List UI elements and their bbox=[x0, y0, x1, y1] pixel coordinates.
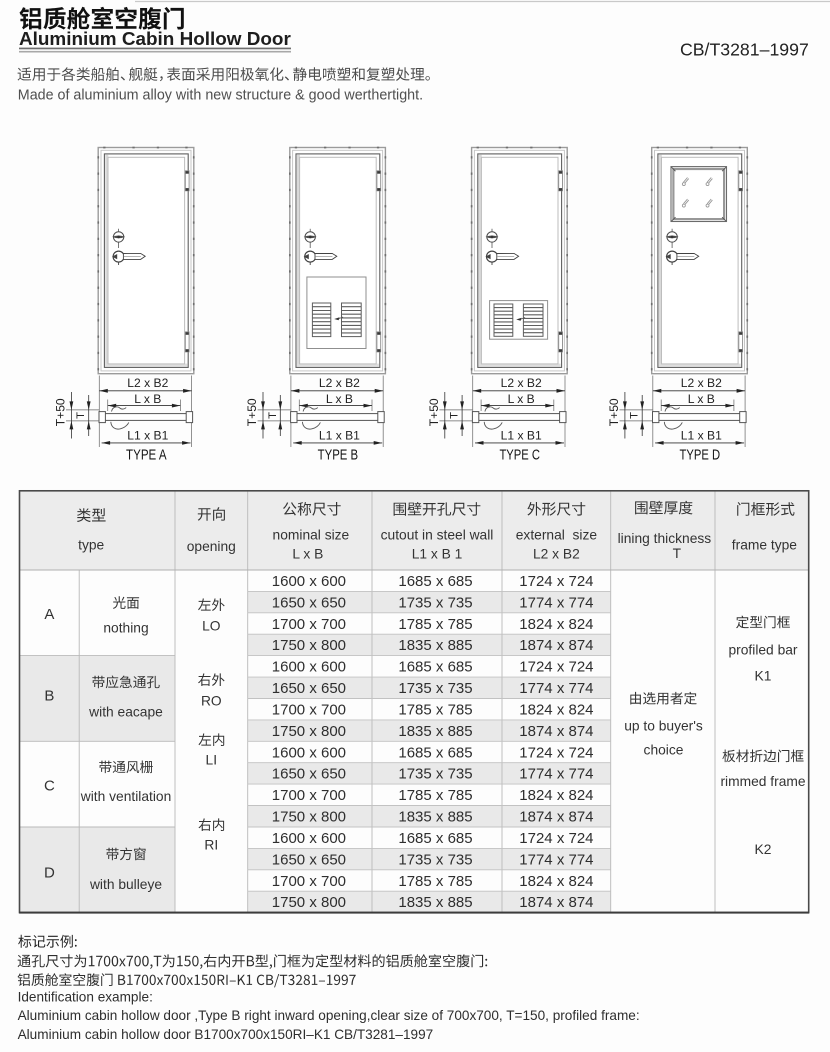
svg-text:1685 x 685: 1685 x 685 bbox=[398, 830, 472, 847]
svg-text:1685 x 685: 1685 x 685 bbox=[398, 744, 472, 761]
svg-text:L x B: L x B bbox=[292, 547, 323, 562]
svg-text:with ventilation: with ventilation bbox=[80, 789, 172, 804]
svg-text:T: T bbox=[267, 412, 279, 419]
svg-text:1735 x 735: 1735 x 735 bbox=[398, 766, 472, 783]
svg-text:1700 x 700: 1700 x 700 bbox=[272, 787, 346, 804]
svg-text:Aluminium cabin hollow door ,T: Aluminium cabin hollow door ,Type B righ… bbox=[18, 1008, 640, 1023]
svg-text:nominal size: nominal size bbox=[273, 528, 350, 543]
svg-text:T: T bbox=[75, 412, 87, 419]
svg-text:1600 x 600: 1600 x 600 bbox=[272, 573, 346, 590]
svg-text:1785 x 785: 1785 x 785 bbox=[398, 616, 472, 633]
svg-text:1685 x 685: 1685 x 685 bbox=[398, 659, 472, 676]
svg-text:D: D bbox=[44, 864, 55, 881]
svg-text:nothing: nothing bbox=[103, 621, 148, 636]
svg-text:1700 x 700: 1700 x 700 bbox=[272, 702, 346, 719]
svg-text:1835 x 885: 1835 x 885 bbox=[398, 894, 472, 911]
svg-text:1685 x 685: 1685 x 685 bbox=[398, 573, 472, 590]
svg-text:1700 x 700: 1700 x 700 bbox=[272, 616, 346, 633]
svg-text:T: T bbox=[673, 546, 682, 561]
svg-text:K2: K2 bbox=[755, 842, 772, 857]
svg-text:T+50: T+50 bbox=[245, 398, 259, 426]
svg-text:1874 x 874: 1874 x 874 bbox=[519, 894, 593, 911]
svg-text:rimmed frame: rimmed frame bbox=[720, 774, 805, 789]
svg-text:L2 x B2: L2 x B2 bbox=[127, 376, 168, 390]
svg-text:1724 x 724: 1724 x 724 bbox=[519, 573, 593, 590]
svg-text:Made of aluminium alloy with n: Made of aluminium alloy with new structu… bbox=[18, 87, 423, 103]
svg-text:1824 x 824: 1824 x 824 bbox=[519, 873, 593, 890]
svg-text:up to buyer's: up to buyer's bbox=[624, 719, 703, 734]
svg-text:with eacape: with eacape bbox=[88, 705, 163, 720]
svg-text:Aluminium cabin hollow door B1: Aluminium cabin hollow door B1700x700x15… bbox=[18, 1027, 434, 1042]
svg-text:C: C bbox=[44, 777, 55, 794]
svg-text:1824 x 824: 1824 x 824 bbox=[519, 702, 593, 719]
svg-text:1724 x 724: 1724 x 724 bbox=[519, 744, 593, 761]
svg-text:L1 x B1: L1 x B1 bbox=[681, 428, 722, 442]
svg-text:L1 x B1: L1 x B1 bbox=[127, 428, 168, 442]
svg-text:1785 x 785: 1785 x 785 bbox=[398, 702, 472, 719]
svg-text:1735 x 735: 1735 x 735 bbox=[398, 680, 472, 697]
svg-text:B: B bbox=[44, 687, 54, 704]
svg-text:1735 x 735: 1735 x 735 bbox=[398, 851, 472, 868]
svg-text:1650 x 650: 1650 x 650 bbox=[272, 594, 346, 611]
svg-text:1824 x 824: 1824 x 824 bbox=[519, 787, 593, 804]
svg-text:L2 x B2: L2 x B2 bbox=[319, 376, 360, 390]
svg-text:1785 x 785: 1785 x 785 bbox=[398, 787, 472, 804]
svg-text:RO: RO bbox=[201, 694, 222, 709]
svg-text:1835 x 885: 1835 x 885 bbox=[398, 637, 472, 654]
svg-text:1735 x 735: 1735 x 735 bbox=[398, 594, 472, 611]
svg-text:RI: RI bbox=[204, 838, 218, 853]
svg-text:1700 x 700: 1700 x 700 bbox=[272, 873, 346, 890]
svg-text:T+50: T+50 bbox=[427, 398, 441, 426]
svg-text:L x B: L x B bbox=[326, 392, 353, 406]
svg-text:type: type bbox=[78, 537, 104, 552]
svg-text:1835 x 885: 1835 x 885 bbox=[398, 723, 472, 740]
svg-text:external size: external size bbox=[516, 528, 598, 543]
svg-text:1874 x 874: 1874 x 874 bbox=[519, 723, 593, 740]
svg-text:TYPE C: TYPE C bbox=[499, 447, 540, 463]
svg-text:A: A bbox=[44, 606, 54, 623]
svg-text:T+50: T+50 bbox=[54, 398, 68, 426]
svg-text:L x B: L x B bbox=[134, 392, 161, 406]
svg-text:1600 x 600: 1600 x 600 bbox=[272, 830, 346, 847]
svg-text:L x B: L x B bbox=[508, 392, 535, 406]
svg-text:L1 x B1: L1 x B1 bbox=[319, 428, 360, 442]
svg-text:TYPE B: TYPE B bbox=[318, 447, 359, 463]
svg-text:1824 x 824: 1824 x 824 bbox=[519, 616, 593, 633]
svg-text:1774 x 774: 1774 x 774 bbox=[519, 680, 593, 697]
svg-text:1600 x 600: 1600 x 600 bbox=[272, 744, 346, 761]
svg-text:TYPE D: TYPE D bbox=[680, 447, 721, 463]
svg-text:L1 x B 1: L1 x B 1 bbox=[412, 547, 463, 562]
svg-text:K1: K1 bbox=[755, 669, 772, 684]
svg-text:T: T bbox=[629, 412, 641, 419]
svg-text:L2 x B2: L2 x B2 bbox=[501, 376, 542, 390]
svg-text:1650 x 650: 1650 x 650 bbox=[272, 680, 346, 697]
svg-text:1600 x 600: 1600 x 600 bbox=[272, 659, 346, 676]
svg-text:1774 x 774: 1774 x 774 bbox=[519, 594, 593, 611]
svg-text:1724 x 724: 1724 x 724 bbox=[519, 659, 593, 676]
svg-text:T+50: T+50 bbox=[607, 398, 621, 426]
svg-text:T: T bbox=[449, 412, 461, 419]
svg-text:1750 x 800: 1750 x 800 bbox=[272, 894, 346, 911]
svg-text:with bulleye: with bulleye bbox=[89, 877, 162, 892]
svg-text:1724 x 724: 1724 x 724 bbox=[519, 830, 593, 847]
svg-text:lining thickness: lining thickness bbox=[618, 531, 712, 546]
svg-text:1750 x 800: 1750 x 800 bbox=[272, 637, 346, 654]
svg-text:1750 x 800: 1750 x 800 bbox=[272, 809, 346, 826]
svg-text:LO: LO bbox=[202, 619, 221, 634]
svg-text:choice: choice bbox=[644, 743, 684, 758]
svg-text:Identification example:: Identification example: bbox=[18, 990, 153, 1005]
svg-text:Aluminium Cabin Hollow Door: Aluminium Cabin Hollow Door bbox=[19, 29, 291, 50]
svg-text:1874 x 874: 1874 x 874 bbox=[519, 637, 593, 654]
svg-text:L x B: L x B bbox=[688, 392, 715, 406]
svg-text:profiled bar: profiled bar bbox=[728, 642, 797, 657]
svg-text:L2 x B2: L2 x B2 bbox=[681, 376, 722, 390]
svg-text:1774 x 774: 1774 x 774 bbox=[519, 851, 593, 868]
svg-text:1835 x 885: 1835 x 885 bbox=[398, 809, 472, 826]
svg-text:1785 x 785: 1785 x 785 bbox=[398, 873, 472, 890]
svg-text:CB/T3281–1997: CB/T3281–1997 bbox=[680, 39, 809, 59]
svg-text:opening: opening bbox=[187, 539, 236, 554]
svg-text:cutout in steel wall: cutout in steel wall bbox=[381, 528, 494, 543]
svg-text:1874 x 874: 1874 x 874 bbox=[519, 809, 593, 826]
svg-text:TYPE A: TYPE A bbox=[126, 447, 167, 463]
svg-text:LI: LI bbox=[206, 753, 218, 768]
svg-text:L2 x B2: L2 x B2 bbox=[533, 547, 580, 562]
svg-text:1650 x 650: 1650 x 650 bbox=[272, 766, 346, 783]
svg-text:1650 x 650: 1650 x 650 bbox=[272, 851, 346, 868]
svg-text:L1 x B1: L1 x B1 bbox=[501, 428, 542, 442]
svg-text:1774 x 774: 1774 x 774 bbox=[519, 766, 593, 783]
svg-text:1750 x 800: 1750 x 800 bbox=[272, 723, 346, 740]
svg-text:frame type: frame type bbox=[732, 538, 798, 553]
